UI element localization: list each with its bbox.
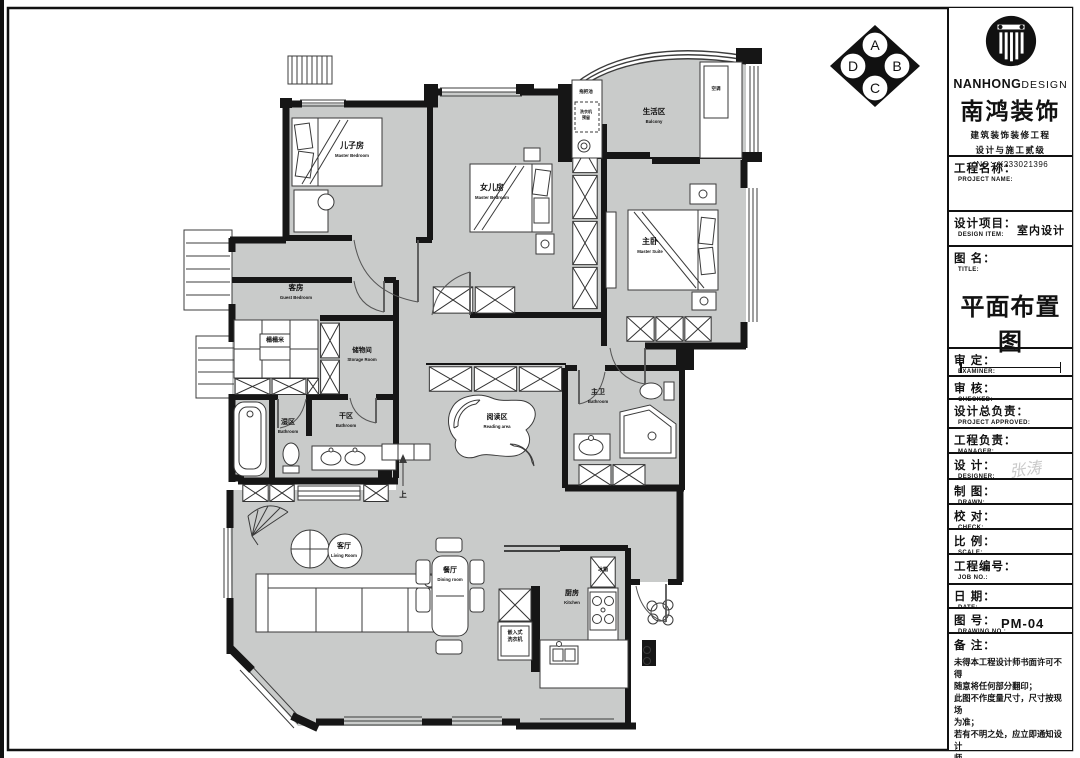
nanhong-logo-icon bbox=[982, 14, 1040, 70]
small-label-5: 洗衣机 bbox=[580, 108, 592, 114]
tatami bbox=[234, 320, 318, 378]
room-label-en-reading-area: Reading area bbox=[484, 424, 512, 429]
field-drawing-title: 图 名：TITLE: 平面布置图 bbox=[949, 245, 1072, 347]
room-label-en-master-bathroom: Bathroom bbox=[588, 399, 608, 404]
room-label-living-room: 客厅 bbox=[336, 541, 351, 550]
room-label-dry-bathroom: 干区 bbox=[339, 412, 353, 420]
small-label-2: 嵌入式 bbox=[507, 629, 522, 636]
nightstand bbox=[524, 148, 540, 161]
field-checked: 审 核：CHECKED: bbox=[949, 375, 1072, 398]
elevation-letter-d: D bbox=[848, 58, 858, 74]
room-label-en-master-suite: Master Suite bbox=[637, 249, 663, 254]
room-label-en-storage-room: Storage Room bbox=[347, 357, 377, 362]
elevation-letter-a: A bbox=[870, 37, 880, 53]
brand-name-en: NANHONGDESIGN bbox=[949, 77, 1072, 91]
room-label-master-suite: 主卧 bbox=[642, 236, 658, 246]
small-label-6: 预留 bbox=[582, 114, 590, 120]
drawing-sheet: A B C D 儿子房Master Bedroom女儿房Master Bedro… bbox=[0, 0, 1080, 758]
field-drawing-no: 图 号：DRAWING NO.: PM-04 bbox=[949, 607, 1072, 632]
room-label-en-daughter-bedroom: Master Bedroom bbox=[475, 195, 509, 200]
toilet bbox=[664, 382, 674, 400]
field-approved: 设计总负责：PROJECT APPROVED: bbox=[949, 398, 1072, 427]
room-label-en-living-room: Living Room bbox=[331, 553, 357, 558]
design-item-value: 室内设计 bbox=[1017, 222, 1065, 238]
elevation-letter-c: C bbox=[870, 80, 880, 96]
room-label-kitchen: 厨房 bbox=[565, 588, 579, 597]
room-label-en-balcony: Balcony bbox=[646, 119, 663, 124]
field-designer: 设 计：DESIGNER: 张涛 bbox=[949, 452, 1072, 478]
chair bbox=[318, 194, 334, 210]
room-label-wet-bathroom: 湿区 bbox=[281, 417, 295, 426]
field-examiner: 审 定：EXAMINER: bbox=[949, 347, 1072, 375]
room-label-en-wet-bathroom: Bathroom bbox=[278, 429, 298, 434]
room-label-son-bedroom: 儿子房 bbox=[339, 140, 364, 150]
field-date: 日 期：DATE: bbox=[949, 583, 1072, 607]
elevation-letter-b: B bbox=[892, 58, 901, 74]
small-label-3: 洗衣机 bbox=[507, 636, 522, 643]
room-label-en-dining-room: Dining room bbox=[437, 577, 462, 582]
room-label-en-kitchen: Kitchen bbox=[564, 600, 580, 605]
shoe-bench bbox=[298, 486, 360, 500]
field-manager: 工程负责：MANAGER: bbox=[949, 427, 1072, 452]
room-label-guest-bedroom: 客房 bbox=[288, 282, 304, 292]
field-check: 校 对：CHECK: bbox=[949, 503, 1072, 528]
field-scale: 比 例：SCALE: bbox=[949, 528, 1072, 553]
room-label-en-dry-bathroom: Bathroom bbox=[336, 423, 356, 428]
room-label-reading-area: 阅读区 bbox=[487, 412, 508, 421]
drawing-number: PM-04 bbox=[1001, 616, 1044, 631]
field-remark: 备 注： 未得本工程设计师书面许可不得 随意将任何部分翻印； 此图不作度量尺寸，… bbox=[949, 632, 1072, 758]
floor-plan: A B C D 儿子房Master Bedroom女儿房Master Bedro… bbox=[0, 0, 1080, 758]
field-project-name: 工程名称：PROJECT NAME: bbox=[949, 155, 1072, 210]
brand-block: NANHONGDESIGN 南鸿装饰 建筑装饰装修工程 设计与施工贰级 *NO：… bbox=[949, 8, 1072, 155]
field-job-no: 工程编号：JOB NO.: bbox=[949, 553, 1072, 583]
small-label-8: 上 bbox=[399, 489, 407, 499]
stove bbox=[590, 592, 616, 630]
title-block: NANHONGDESIGN 南鸿装饰 建筑装饰装修工程 设计与施工贰级 *NO：… bbox=[947, 8, 1072, 750]
field-design-item: 设计项目：DESIGN ITEM: 室内设计 bbox=[949, 210, 1072, 245]
small-label-0: 榻榻米 bbox=[265, 336, 284, 344]
coffee-table bbox=[328, 534, 362, 568]
room-label-daughter-bedroom: 女儿房 bbox=[480, 182, 504, 192]
room-label-dining-room: 餐厅 bbox=[442, 565, 457, 574]
small-label-4: 拖把池 bbox=[579, 88, 593, 95]
field-drawn: 制 图：DRAWN: bbox=[949, 478, 1072, 503]
remark-text: 未得本工程设计师书面许可不得 随意将任何部分翻印； 此图不作度量尺寸，尺寸按现场… bbox=[954, 656, 1067, 758]
room-label-en-son-bedroom: Master Bedroom bbox=[335, 153, 369, 158]
room-label-balcony: 生活区 bbox=[643, 106, 666, 116]
room-label-master-bathroom: 主卫 bbox=[591, 387, 605, 396]
brand-cert-line1: 建筑装饰装修工程 bbox=[949, 129, 1072, 141]
toilet bbox=[283, 443, 299, 465]
room-label-en-guest-bedroom: Guest Bedroom bbox=[280, 295, 312, 300]
small-label-7: 空调 bbox=[712, 85, 721, 92]
room-label-storage-room: 储物间 bbox=[351, 345, 372, 354]
tv-cabinet bbox=[606, 212, 616, 288]
sheet-edge bbox=[0, 0, 4, 758]
bed-son bbox=[292, 118, 382, 186]
small-label-1: 冰箱 bbox=[598, 566, 608, 573]
brand-name-cn: 南鸿装饰 bbox=[949, 92, 1072, 126]
balcony-cabinet bbox=[700, 62, 742, 158]
